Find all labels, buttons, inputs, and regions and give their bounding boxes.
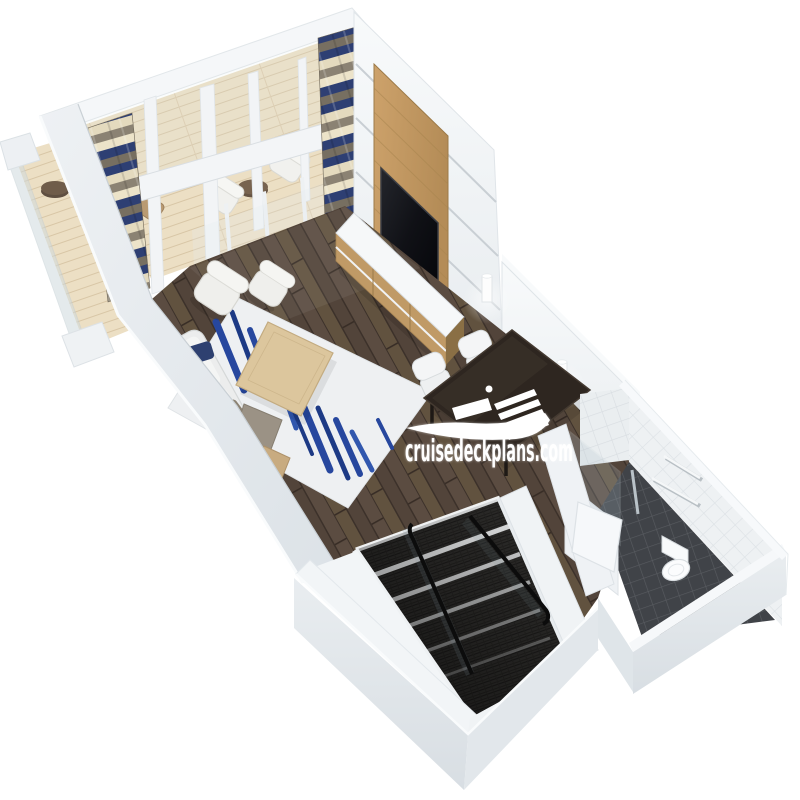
lamp-top [482,274,492,278]
floorplan-render: cruisedeckplans.com cruisedeckplans.com [0,0,800,800]
ship-funnel-dot [486,386,493,393]
lamp-top [557,360,567,364]
watermark-text: cruisedeckplans.com [405,434,573,469]
lamp-body [482,276,492,302]
bathroom-outer-wall-sw-face [598,598,633,692]
scene-root: cruisedeckplans.com cruisedeckplans.com [0,0,800,800]
